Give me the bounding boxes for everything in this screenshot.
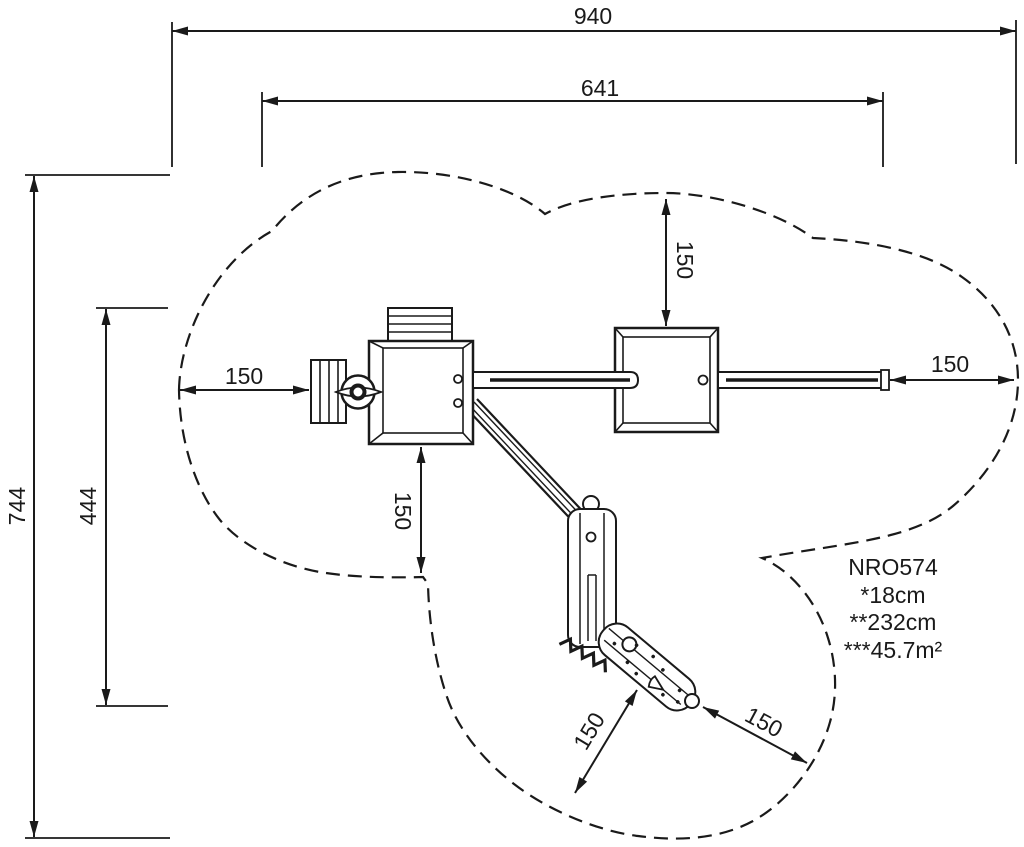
arrowhead (998, 376, 1014, 385)
arrowhead (625, 690, 637, 706)
dim-label-inner-width: 641 (581, 75, 619, 101)
arrowhead (575, 777, 587, 793)
main-tower-platform (311, 308, 473, 444)
dim-clearance-left: 150 (180, 363, 309, 395)
playground-plan-drawing: 940 641 744 444 150 150 (0, 0, 1024, 847)
dim-inner-width: 641 (262, 75, 883, 167)
dim-label-clearance-slide-end: 150 (741, 702, 787, 743)
model-number: NRO574 (848, 554, 938, 580)
arrowhead (293, 386, 309, 395)
deck-hole (454, 375, 462, 383)
dim-clearance-bottom: 150 (390, 447, 426, 573)
arrowhead (890, 376, 906, 385)
arrowhead (30, 821, 39, 837)
arrowhead (180, 386, 196, 395)
info-block: NRO574 *18cm **232cm ***45.7m² (844, 554, 943, 663)
dim-inner-height: 444 (75, 308, 168, 706)
deck-hole (699, 376, 708, 385)
slide-chute (568, 496, 616, 647)
dim-clearance-right: 150 (890, 351, 1014, 385)
fall-height-note: *18cm (860, 582, 925, 608)
deck-hole (454, 399, 462, 407)
dim-label-clearance-top: 150 (672, 241, 698, 279)
arrowhead (703, 707, 719, 719)
beam-end-cap (881, 370, 889, 390)
arrowhead (867, 97, 883, 106)
arrowhead (102, 309, 111, 325)
dim-label-inner-height: 444 (75, 487, 101, 526)
arrowhead (417, 447, 426, 463)
beam-right-overhang (718, 370, 889, 390)
dim-label-clearance-bottom: 150 (390, 492, 416, 530)
arrowhead (30, 176, 39, 192)
arrowhead (262, 97, 278, 106)
arrowhead (417, 557, 426, 573)
arrowhead (172, 27, 188, 36)
arrowhead (1000, 27, 1016, 36)
rocker-end-ball (685, 694, 699, 708)
ladder (388, 308, 452, 341)
dim-label-total-height: 744 (4, 487, 30, 526)
dim-clearance-slide-end: 150 (703, 702, 807, 763)
dim-label-clearance-left: 150 (225, 363, 263, 389)
dim-clearance-slide-side: 150 (568, 690, 637, 793)
arrowhead (791, 751, 807, 763)
slide-rails (467, 399, 590, 529)
arrowhead (102, 689, 111, 705)
arrowhead (662, 199, 671, 215)
equipment-height-note: **232cm (850, 609, 937, 635)
dim-label-total-width: 940 (574, 3, 612, 29)
technical-drawing-page: 940 641 744 444 150 150 (0, 0, 1024, 847)
tower-deck-outer (369, 341, 473, 444)
dim-label-clearance-right: 150 (931, 351, 969, 377)
dim-clearance-top: 150 (662, 199, 699, 326)
beam-between-platforms (473, 372, 638, 388)
arrowhead (662, 310, 671, 326)
safety-area-note: ***45.7m² (844, 637, 943, 663)
